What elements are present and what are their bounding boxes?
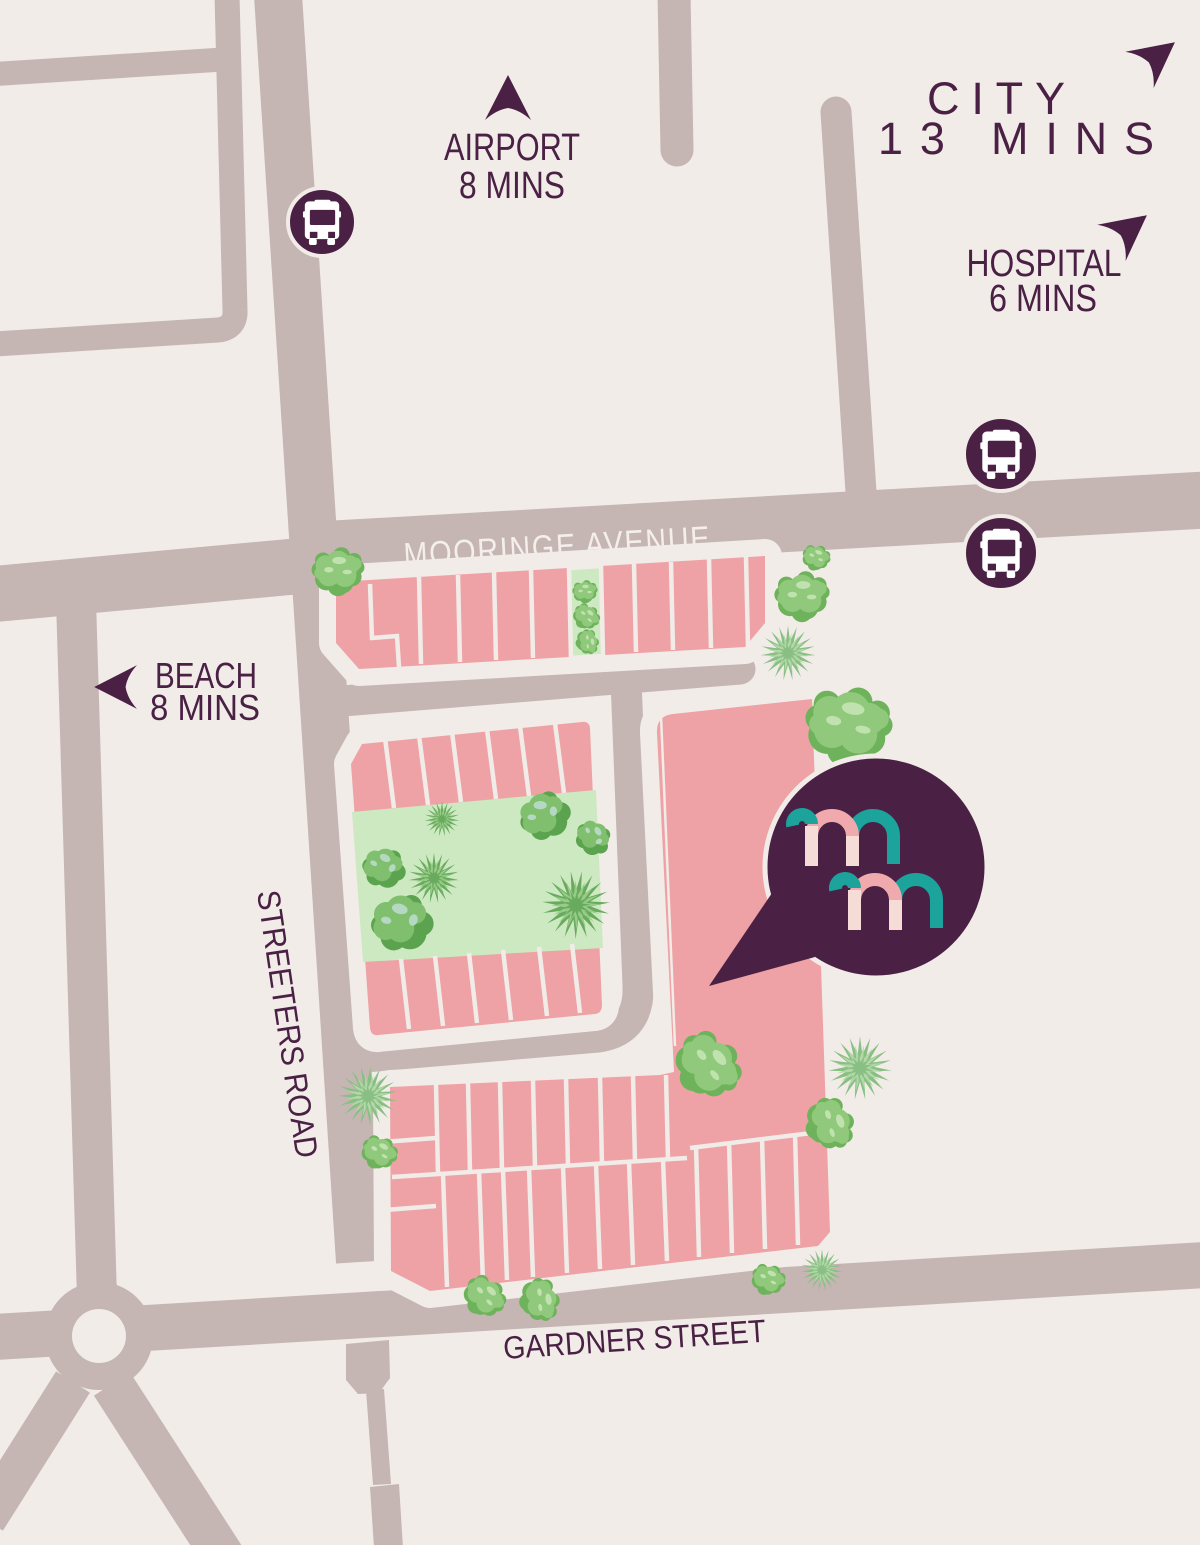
- svg-text:6 MINS: 6 MINS: [989, 278, 1097, 320]
- svg-text:AIRPORT: AIRPORT: [444, 127, 580, 169]
- svg-text:8 MINS: 8 MINS: [150, 687, 260, 728]
- svg-text:8 MINS: 8 MINS: [459, 165, 565, 207]
